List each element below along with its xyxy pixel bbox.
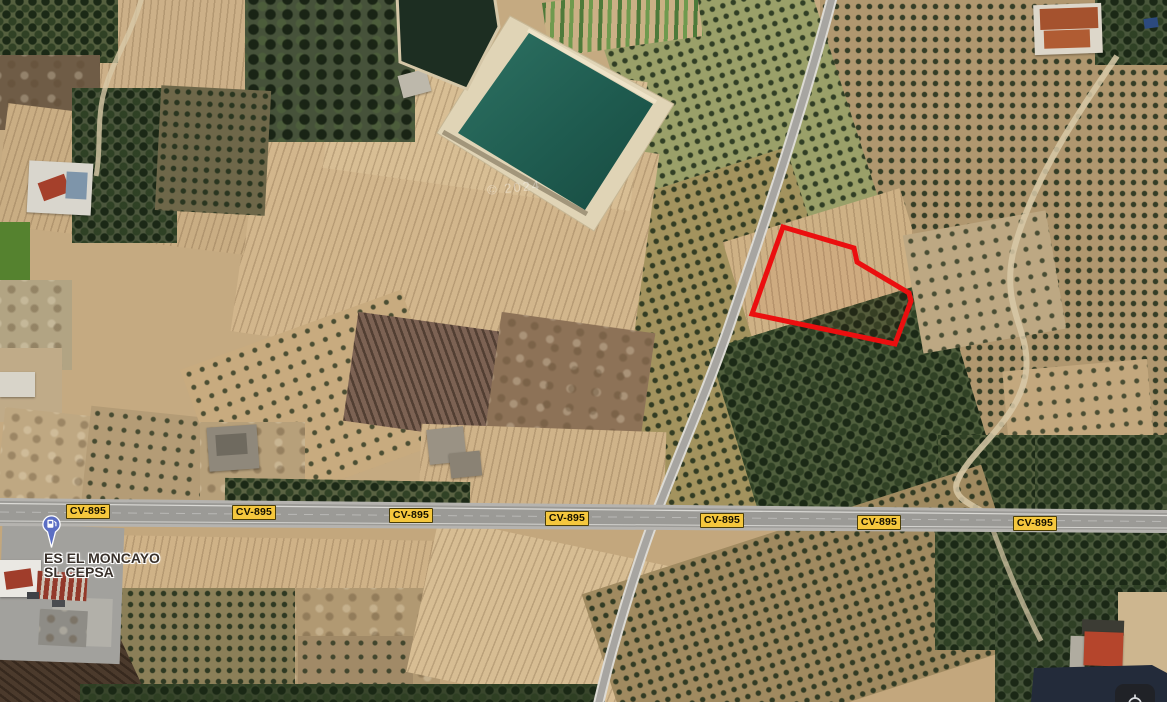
- map-overlay-layer: [0, 0, 1167, 702]
- road-badge: CV-895: [66, 504, 110, 519]
- fuel-station-pin-icon[interactable]: [42, 515, 61, 549]
- road-badge: CV-895: [1013, 516, 1057, 531]
- road-badge: CV-895: [857, 515, 901, 530]
- parcel-outline-polygon: [752, 227, 911, 344]
- farm-path: [956, 56, 1117, 514]
- road-badge: CV-895: [545, 511, 589, 526]
- satellite-map[interactable]: CV-895 CV-895 CV-895 CV-895 CV-895 CV-89…: [0, 0, 1167, 702]
- poi-label-line2: SL CEPSA: [44, 565, 174, 579]
- road-badge: CV-895: [389, 508, 433, 523]
- farm-path: [993, 530, 1041, 641]
- farm-path: [96, 0, 143, 176]
- gas-station-poi[interactable]: ES EL MONCAYO SL CEPSA: [42, 515, 61, 554]
- poi-label[interactable]: ES EL MONCAYO SL CEPSA: [44, 551, 174, 579]
- my-location-icon: [1125, 694, 1145, 702]
- road-badge: CV-895: [232, 505, 276, 520]
- road-badge: CV-895: [700, 513, 744, 528]
- my-location-button[interactable]: [1115, 684, 1155, 702]
- poi-label-line1: ES EL MONCAYO: [44, 551, 174, 565]
